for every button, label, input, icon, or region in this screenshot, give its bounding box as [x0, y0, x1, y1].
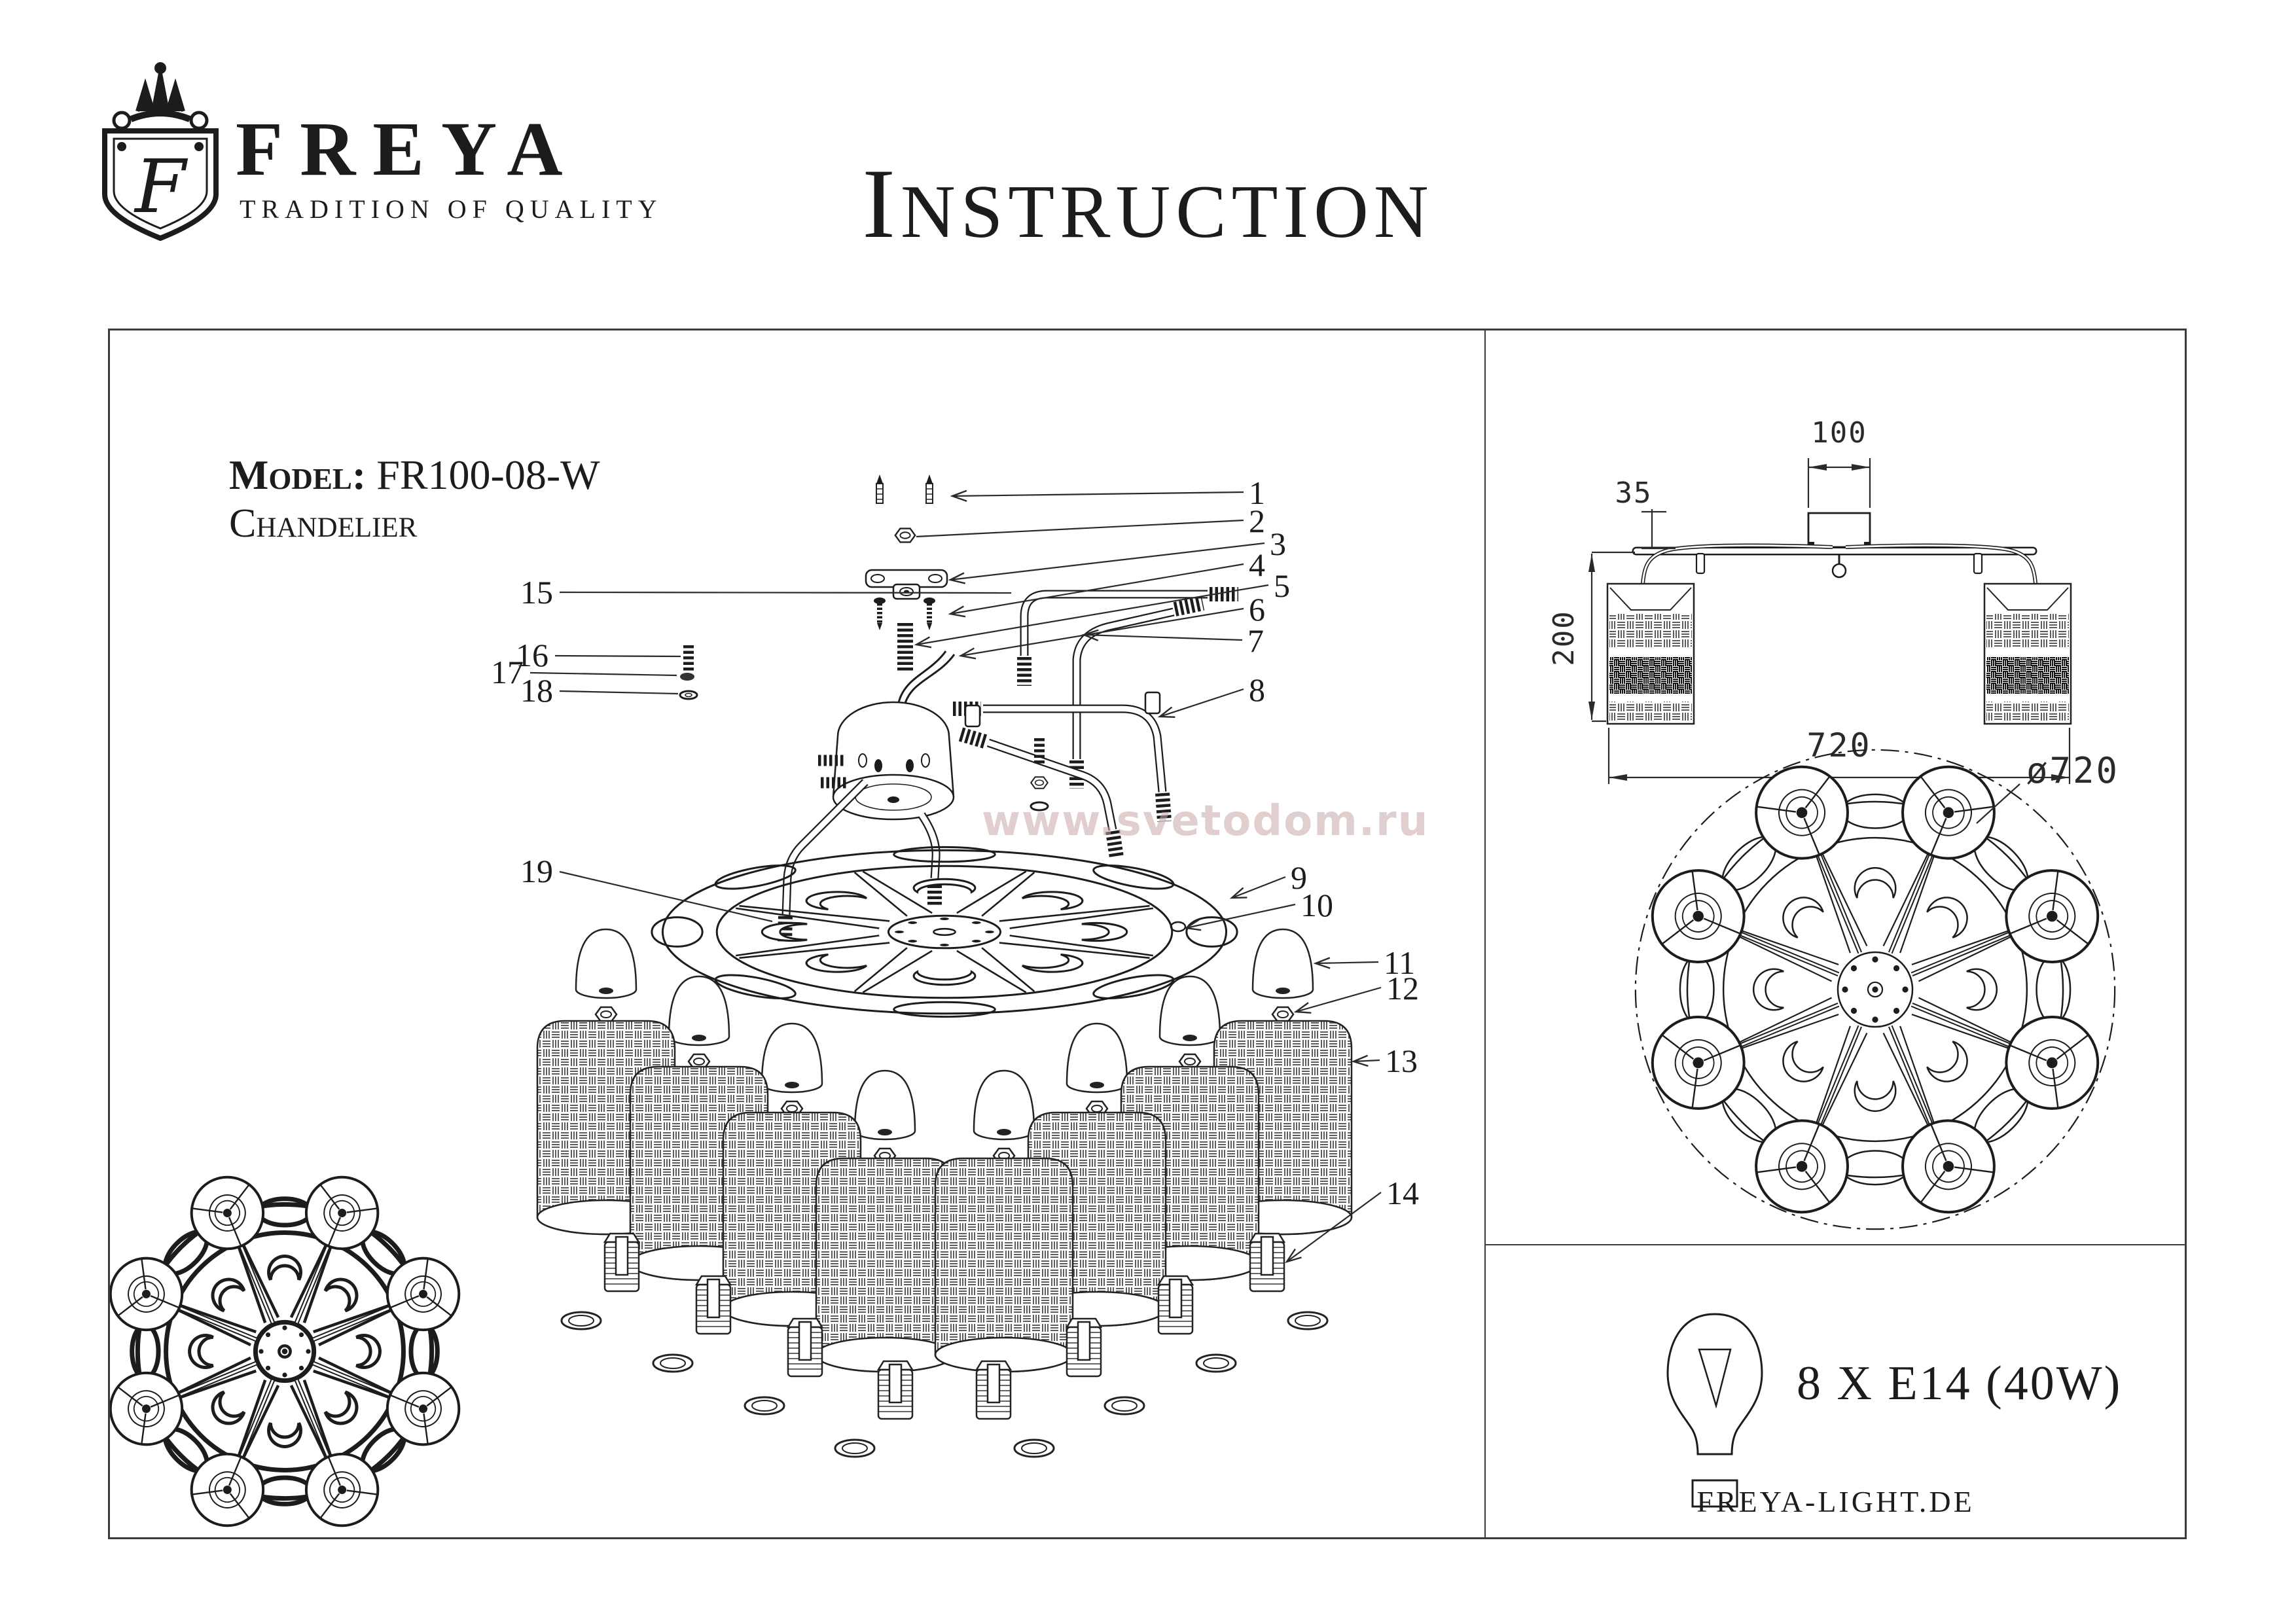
instruction-sheet: F FREYA TRADITION OF QUALITY INSTRUCTION [0, 0, 2296, 1623]
model-label: Model: [229, 452, 366, 498]
model-value: FR100-08-W [376, 452, 600, 498]
horizontal-divider [1484, 1244, 2187, 1245]
vertical-divider [1484, 329, 1486, 1539]
watermark: www.svetodom.ru [982, 797, 1429, 846]
product-type: Chandelier [229, 500, 600, 548]
model-block: Model: FR100-08-W Chandelier [229, 450, 600, 548]
website: FREYA-LIGHT.DE [1484, 1484, 2187, 1519]
bulb-spec: 8 X E14 (40W) [1797, 1356, 2122, 1412]
